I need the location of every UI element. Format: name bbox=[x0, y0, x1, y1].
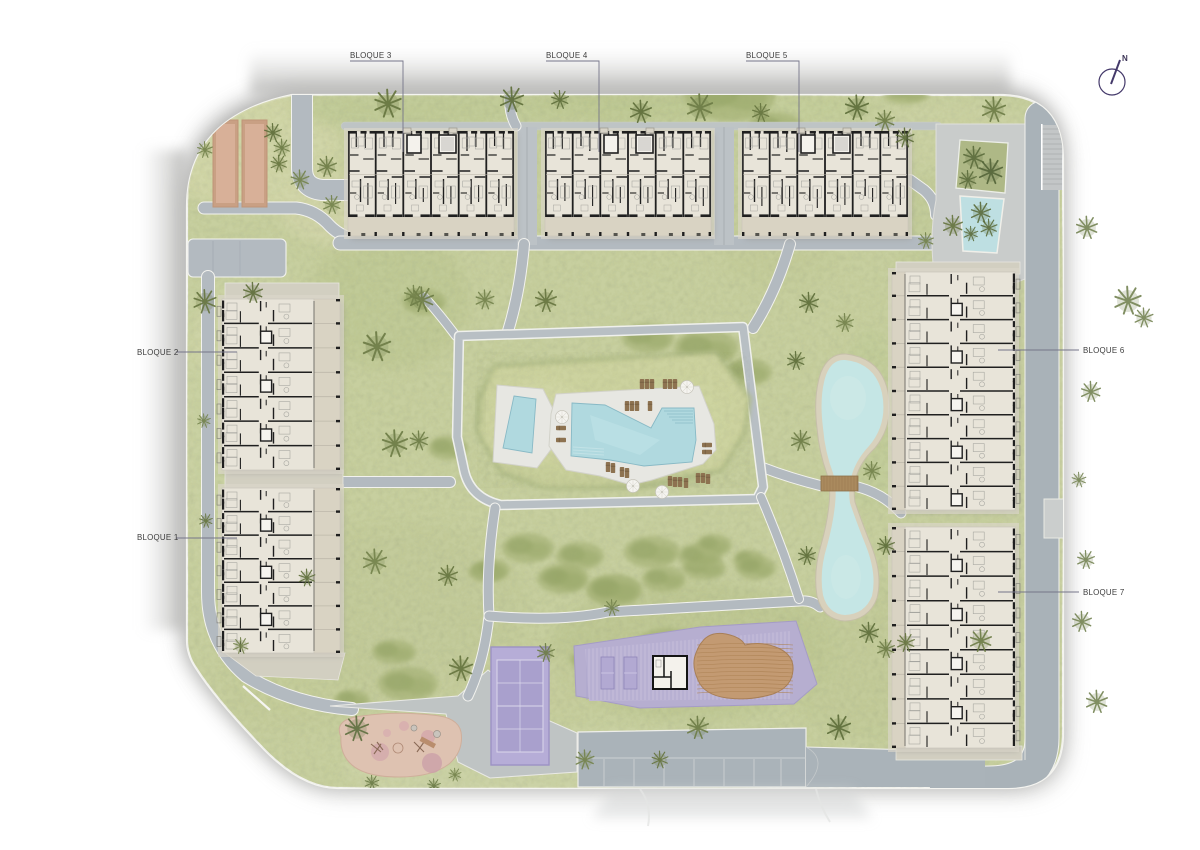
svg-text:BLOQUE 1: BLOQUE 1 bbox=[137, 533, 178, 542]
svg-text:N: N bbox=[1122, 54, 1128, 63]
svg-text:BLOQUE 2: BLOQUE 2 bbox=[137, 348, 178, 357]
svg-text:BLOQUE 3: BLOQUE 3 bbox=[350, 51, 392, 60]
svg-text:BLOQUE 6: BLOQUE 6 bbox=[1083, 346, 1125, 355]
svg-text:BLOQUE 4: BLOQUE 4 bbox=[546, 51, 588, 60]
svg-text:BLOQUE 7: BLOQUE 7 bbox=[1083, 588, 1124, 597]
svg-text:BLOQUE 5: BLOQUE 5 bbox=[746, 51, 788, 60]
